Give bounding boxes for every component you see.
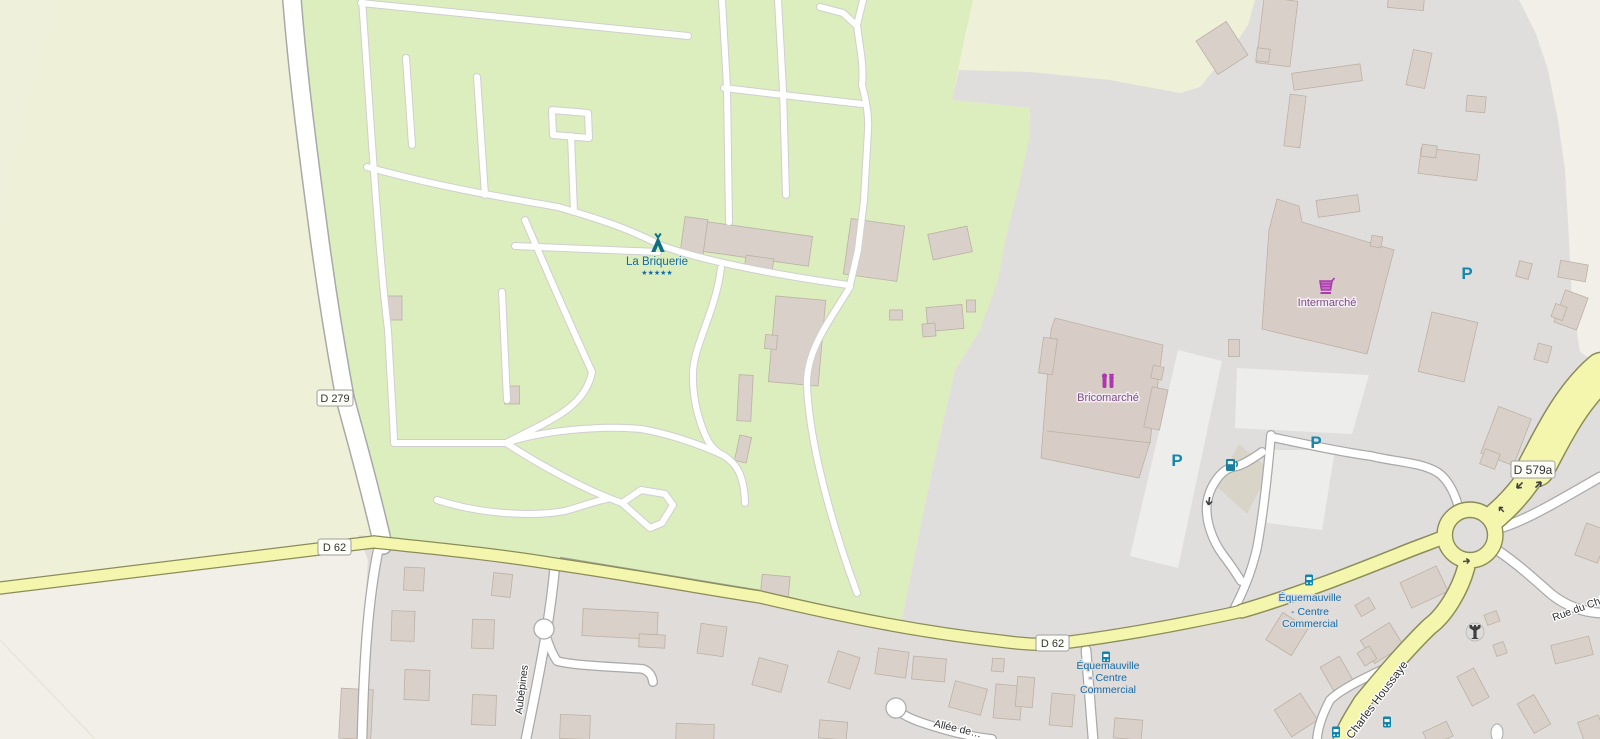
svg-text:★★★★★: ★★★★★ xyxy=(641,269,672,277)
svg-text:La Briquerie: La Briquerie xyxy=(626,256,688,268)
svg-text:Bricomarché: Bricomarché xyxy=(1077,392,1139,404)
svg-text:- Centre: - Centre xyxy=(1291,606,1329,618)
svg-text:Commercial: Commercial xyxy=(1282,618,1338,630)
svg-text:D 579a: D 579a xyxy=(1514,463,1553,477)
svg-text:P: P xyxy=(1310,433,1321,452)
svg-text:P: P xyxy=(1461,264,1472,283)
svg-text:Équemauville: Équemauville xyxy=(1076,659,1139,672)
svg-text:D 62: D 62 xyxy=(1041,638,1064,650)
svg-text:Équemauville: Équemauville xyxy=(1278,591,1341,604)
svg-text:Intermarché: Intermarché xyxy=(1298,297,1357,309)
svg-text:- Centre: - Centre xyxy=(1089,672,1127,684)
svg-text:P: P xyxy=(1171,451,1182,470)
svg-text:D 62: D 62 xyxy=(323,542,346,554)
svg-text:Commercial: Commercial xyxy=(1080,684,1136,696)
svg-text:D 279: D 279 xyxy=(320,393,349,405)
